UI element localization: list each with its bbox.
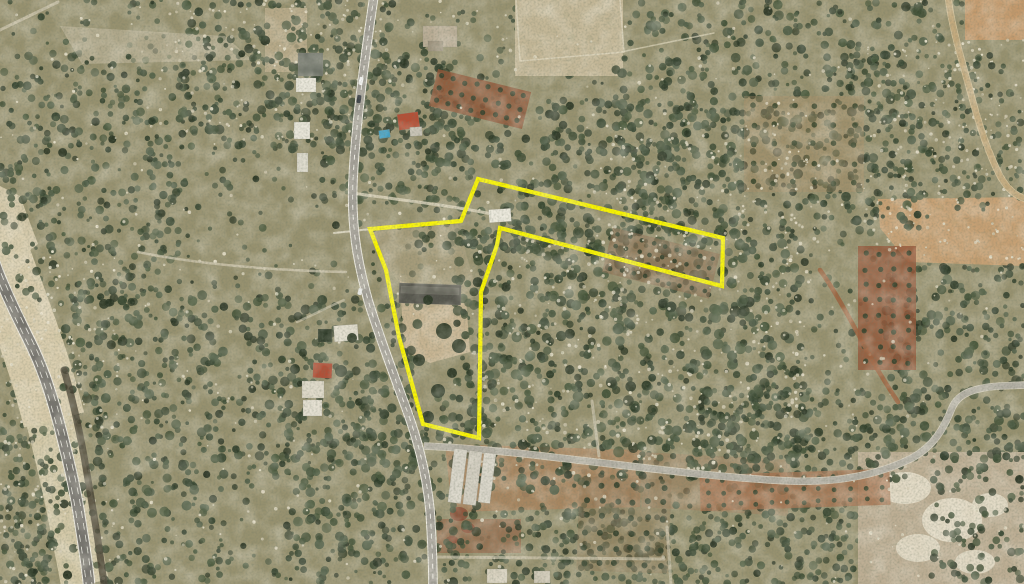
satellite-map-svg: [0, 0, 1024, 584]
grain-overlay: [0, 0, 1024, 584]
satellite-image: [0, 0, 1024, 584]
